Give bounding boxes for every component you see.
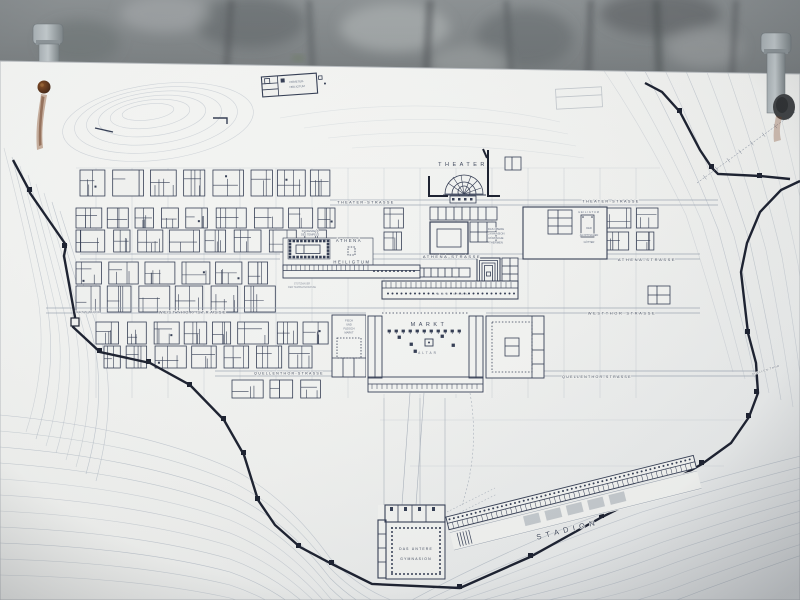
scene: STADION THEATER MARKT ALTAR IERA STOA AT… xyxy=(0,0,800,600)
photo-of-site-map-board: STADION THEATER MARKT ALTAR IERA STOA AT… xyxy=(0,0,800,600)
vignette xyxy=(0,0,800,600)
